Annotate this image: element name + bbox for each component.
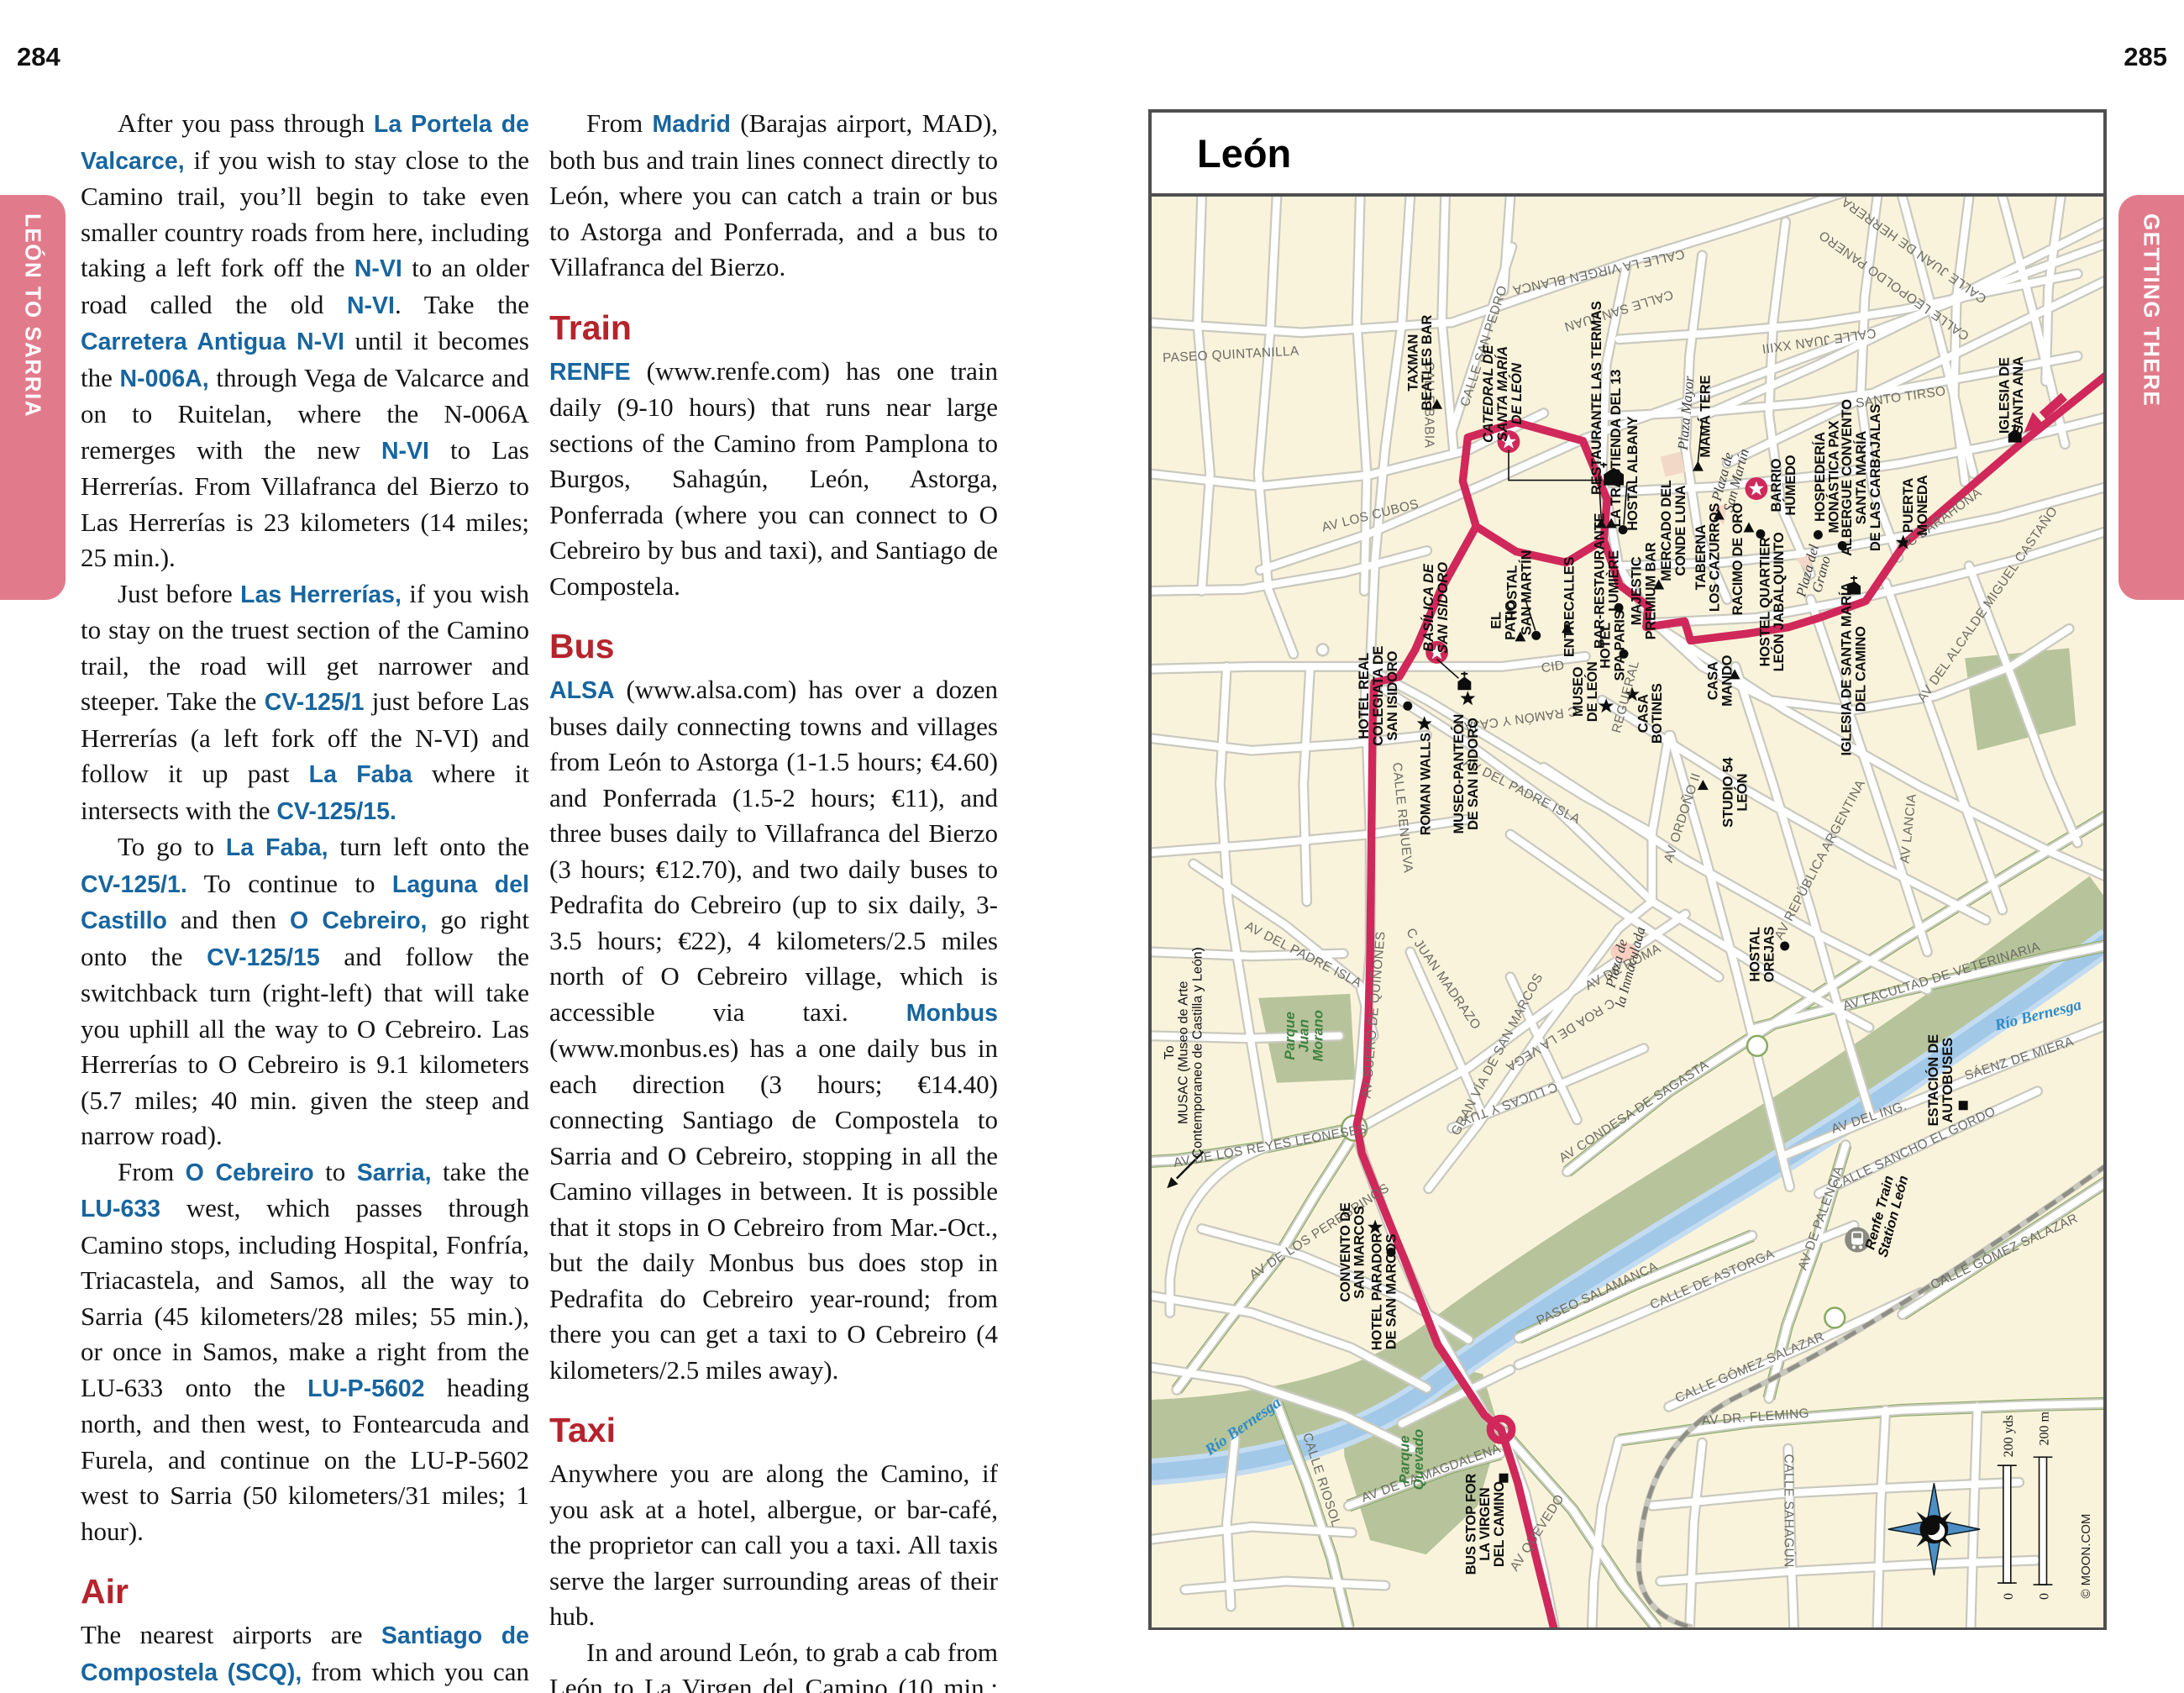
poi-dot-icon — [1403, 702, 1412, 711]
keyword: O Cebreiro, — [290, 907, 427, 934]
poi-dot-icon — [1756, 529, 1765, 539]
map-label-moon-credit: © MOON.COM — [2079, 1514, 2093, 1599]
map-label-la-trastienda-del-13: LA TRASTIENDA DEL 13 — [1609, 370, 1624, 528]
map-label-hostal-orejas: HOSTALOREJAS — [1747, 926, 1777, 982]
keyword: La Faba, — [226, 834, 328, 861]
keyword: Carretera Antigua N-VI — [81, 329, 344, 355]
keyword: Monbus — [906, 1000, 998, 1027]
body-paragraph: From Madrid (Barajas airport, MAD), both… — [549, 106, 998, 286]
map-label-hospederia-monastica-pax: HOSPEDERÍAMONÁSTICA PAX — [1812, 420, 1842, 533]
map-label-scale-0-yds: 0 — [2002, 1593, 2016, 1600]
map-svg: PASEO QUINTANILLAAV LOS CUBOSCALLE BABIA… — [1152, 197, 2103, 1627]
keyword: CV-125/1. — [81, 871, 187, 898]
keyword: O Cebreiro — [186, 1159, 314, 1186]
map-label-barrio-humedo: BARRIOHÚMEDO — [1769, 455, 1798, 515]
body-paragraph: Anywhere you are along the Camino, if yo… — [549, 1456, 998, 1635]
keyword: N-VI — [347, 292, 395, 319]
keyword: CV-125/15. — [276, 798, 396, 825]
map-label-iglesia-de-santa-ana: IGLESIA DESANTA ANA — [1997, 356, 2026, 434]
map-label-bus-stop-la-virgen-del-camino: BUS STOP FORLA VIRGENDEL CAMINO — [1463, 1474, 1507, 1575]
keyword: Madrid — [653, 111, 731, 138]
map-label-mama-tere: MAMÁ TERE — [1697, 375, 1713, 457]
keyword: LU-P-5602 — [307, 1375, 424, 1402]
poi-dot-icon — [1814, 530, 1823, 539]
body-paragraph: Just before Las Herrerías, if you wish t… — [81, 576, 529, 830]
body-paragraph: After you pass through La Portela de Val… — [81, 106, 529, 576]
map-label-estacion-de-autobuses: ESTACIÓN DEAUTOBUSES — [1925, 1034, 1956, 1126]
map-label-calle-sahagun: CALLE SAHAGÚN — [1782, 1454, 1796, 1568]
map-label-parque-quevado: ParqueQuevado — [1396, 1429, 1426, 1491]
map-label-museo-panteon-de-san-isidoro: MUSEO-PANTEÓNDE SAN ISIDORO — [1451, 714, 1481, 834]
map-body: PASEO QUINTANILLAAV LOS CUBOSCALLE BABIA… — [1152, 197, 2103, 1627]
map-label-scale-200yds: 200 yds — [2002, 1415, 2016, 1457]
keyword: CV-125/15 — [207, 944, 320, 971]
map-label-hostel-quartier-leon-jabalquinto: HOSTEL QUARTIERLEÓN JABALQUINTO — [1757, 532, 1787, 671]
map-label-hotel-real-colegiata: HOTEL REALCOLEGIATA DESAN ISIDORO — [1357, 646, 1400, 746]
body-paragraph: The nearest airports are Santiago de Com… — [81, 1617, 529, 1693]
body-paragraph: In and around León, to grab a cab from L… — [549, 1635, 998, 1693]
map-label-racimo-de-oro: RACIMO DE ORO — [1730, 502, 1746, 615]
chapter-tab-left-label: LEÓN TO SARRIA — [20, 213, 46, 418]
map-label-museo-de-leon: MUSEODE LEÓN — [1571, 661, 1600, 722]
keyword: ALSA — [549, 677, 615, 704]
map-title: León — [1152, 113, 2103, 197]
chapter-tab-left: LEÓN TO SARRIA — [0, 195, 66, 600]
poi-square-icon — [1959, 1101, 1968, 1110]
text-column-2: From Madrid (Barajas airport, MAD), both… — [549, 106, 998, 1693]
map-label-mercado-del-conde-luna: MERCADO DELCONDE LUNA — [1659, 480, 1688, 581]
body-paragraph: ALSA (www.alsa.com) has over a dozen bus… — [549, 672, 998, 1388]
body-paragraph: From O Cebreiro to Sarria, take the LU-6… — [81, 1154, 529, 1550]
keyword: RENFE — [549, 359, 631, 386]
map-label-convento-de-san-marcos: CONVENTO DESAN MARCOS — [1338, 1202, 1368, 1302]
leon-map: León — [1148, 109, 2107, 1630]
keyword: N-VI — [354, 255, 402, 282]
map-label-hostal-albany: HOSTAL ALBANY — [1625, 416, 1641, 530]
map-label-roman-walls: ROMAN WALLS — [1419, 733, 1434, 835]
keyword: N-VI — [381, 438, 429, 465]
section-heading: Air — [81, 1572, 529, 1612]
map-label-hotel-parador-de-san-marcos: HOTEL PARADORDE SAN MARCOS — [1370, 1233, 1399, 1350]
keyword: La Faba — [309, 761, 412, 788]
body-paragraph: RENFE (www.renfe.com) has one train dail… — [549, 354, 998, 605]
text-column-1: After you pass through La Portela de Val… — [81, 106, 529, 1693]
section-tab-right: GETTING THERE — [2118, 195, 2184, 600]
keyword: Santiago de Compostela (SCQ), — [81, 1622, 529, 1686]
map-label-majestic-premium-bar: MAJESTICPREMIUM BAR — [1629, 542, 1658, 639]
train-window-icon — [1853, 1233, 1861, 1238]
poi-square-icon — [1499, 1474, 1509, 1483]
train-wheel-icon — [1852, 1246, 1856, 1249]
keyword: N-006A, — [120, 365, 209, 392]
section-heading: Train — [549, 308, 998, 348]
page-number-right: 285 — [2124, 42, 2167, 72]
section-heading: Taxi — [549, 1411, 998, 1450]
map-label-basilica-de-san-isidoro: BASÍLICA DESAN ISIDORO — [1420, 562, 1451, 654]
page-number-left: 284 — [17, 42, 60, 72]
keyword: CV-125/1 — [265, 689, 365, 716]
body-paragraph: To go to La Faba, turn left onto the CV-… — [81, 829, 529, 1154]
map-label-casa-mando: CASAMANDO — [1706, 655, 1735, 707]
map-label-entrecalles: ENTRECALLES — [1562, 556, 1577, 657]
map-label-puerta-moneda: PUERTAMONEDA — [1901, 475, 1930, 535]
map-label-scale-0-m: 0 — [2038, 1593, 2052, 1600]
map-label-scale-200m: 200 m — [2038, 1411, 2052, 1445]
map-label-restaurante-las-termas: RESTAURANTE LAS TERMAS — [1589, 301, 1604, 495]
section-heading: Bus — [549, 627, 998, 666]
keyword: La Portela de Valcarce, — [81, 111, 529, 175]
keyword: Sarria, — [357, 1159, 432, 1186]
keyword: Las Herrerías, — [240, 581, 402, 608]
keyword: LU-633 — [81, 1196, 160, 1222]
book-spread: 284 285 LEÓN TO SARRIA GETTING THERE Aft… — [0, 0, 2184, 1693]
section-tab-right-label: GETTING THERE — [2139, 213, 2165, 407]
poi-dot-icon — [1780, 941, 1789, 950]
